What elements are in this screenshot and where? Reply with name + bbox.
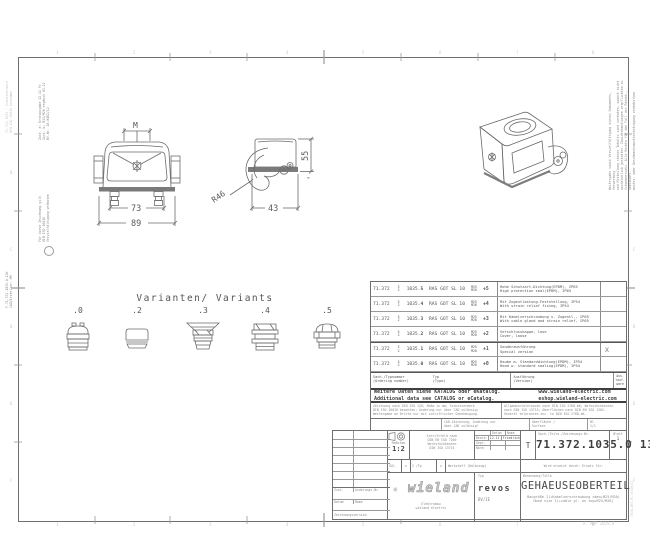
projection-cell: Maßstab 1:2: [388, 431, 410, 459]
margin-left-bottom-note: F-71.372.1035.0-13KCAD/Ersteller: MM: [5, 246, 13, 308]
variant-suffix: +3: [483, 317, 497, 322]
margin-circle-mark: [44, 246, 54, 256]
variant-group-3: .3: [185, 306, 221, 359]
variants-table: 71.372521035.5 RAS GOT SL 10M25M20 +5 Ho…: [370, 281, 627, 433]
type-code: RAS GOT SL 10M25M20: [429, 301, 483, 308]
grid-col-label: 2: [133, 50, 135, 55]
part-number-label: Sach-/Teile-/Zeichnungs-Nr.: [536, 431, 609, 436]
type-code: RAS GOT SL 10M25M20: [429, 331, 483, 338]
header-type: Typ(Type): [427, 373, 511, 388]
variant-suffix: +1: [483, 347, 497, 352]
validity-x1: x: [402, 460, 411, 472]
table-header-row: Sach-/Typnummer(Ordering number) Typ(Typ…: [371, 372, 626, 388]
table-row: 71.372521035.5 RAS GOT SL 10M25M20 +5 Ho…: [371, 282, 626, 297]
side-view-drawing: R46 43 55 ≈: [212, 95, 327, 235]
grid-col-label: 5: [362, 522, 364, 527]
title-block: Zust. Änderungs-Nr. Datum Name Zeichnung…: [332, 430, 627, 520]
dim-label-m: M: [133, 121, 138, 130]
phase-out-flag: [600, 357, 613, 371]
variant-glyph-5: [309, 315, 345, 359]
revision-bottom-label: Zeichnungsversion: [334, 513, 389, 517]
variant-suffix: +0: [483, 362, 497, 367]
dim-label-73: 73: [131, 204, 141, 214]
variant-suffix: +2: [483, 332, 497, 337]
type-code: RAS GOT SL 10M25M20: [429, 286, 483, 293]
part-number-value: 71.372.1035.0 13K: [536, 438, 609, 451]
phase-out-flag: X: [600, 343, 613, 356]
dim-approx-mark: ≈: [307, 176, 310, 181]
type-code: RAS GOT SL 10M25M20: [429, 316, 483, 323]
grid-col-label: 7: [516, 50, 518, 55]
grid-row-label: A: [633, 93, 635, 98]
part-number: 71.372521035.2: [371, 331, 429, 338]
description: Mit Kabelverschraubung u. Zugentl., IP65…: [497, 312, 600, 326]
revision-header-2: Datum Name: [333, 500, 390, 504]
grid-row-label: B: [10, 170, 12, 175]
margin-right-doc-code: 7034-ART-PL-0349/17: [630, 429, 634, 517]
notes-right: Allgemeintoleranzen nach DIN ISO 2768-mK…: [501, 403, 626, 418]
front-view-drawing: M 73 89: [88, 95, 203, 235]
wieland-logo-text: wieland: [408, 481, 470, 496]
grid-col-label: 1: [56, 50, 58, 55]
projection-symbol-icon: [388, 432, 406, 441]
iso-view-drawing: [428, 103, 573, 218]
approval-table: Datum Name Bearb. 12.11 Friedrich Gepr.: [475, 431, 521, 459]
series-name: revos: [478, 484, 520, 494]
variant-glyph-2: [119, 315, 155, 359]
grid-col-label: 5: [362, 50, 364, 55]
variant-group-4: .4: [247, 306, 283, 359]
catalog-note-text: Weitere Daten siehe KATALOG oder eKatalo…: [371, 389, 538, 401]
variant-suffix: +4: [483, 302, 497, 307]
grid-row-label: D: [633, 324, 635, 329]
table-row: 71.372521035.1 RAS GOT SL 10M25M20 +1 So…: [371, 342, 626, 357]
part-number: 71.372521035.0: [371, 361, 429, 368]
variant-glyph-0: [60, 315, 96, 359]
variant-label: .4: [247, 306, 283, 315]
revision-strip: Zust. Änderungs-Nr. Datum Name Zeichnung…: [333, 431, 388, 519]
variant-group-0: .0: [60, 306, 96, 359]
dim-label-r46: R46: [210, 189, 227, 205]
description: Hohe Schutzart-Dichtung(EPDM), IP65High …: [497, 282, 600, 296]
part-number: 71.372521035.3: [371, 316, 429, 323]
drawing-subtitle-en: Hood size 1(+cable gl. on top+M25/M20): [521, 499, 626, 503]
variants-title: Varianten/ Variants: [120, 293, 290, 304]
type-code: RAS GOT SL 10M25M20: [429, 361, 483, 368]
t-marker: T: [521, 431, 536, 459]
variant-label: .2: [119, 306, 155, 315]
grid-col-label: 1: [56, 522, 58, 527]
header-phase-out: Aus-lauf-ware: [613, 373, 626, 388]
table-row: 71.372521035.3 RAS GOT SL 10M25M20 +3 Mi…: [371, 312, 626, 327]
part-number: 71.372521035.5: [371, 286, 429, 293]
revision-header-1: Zust. Änderungs-Nr.: [333, 488, 390, 492]
type-code: RAS GOT SL 10M25M20: [429, 346, 483, 353]
grid-col-label: 8: [592, 522, 594, 527]
dim-label-55: 55: [301, 151, 311, 161]
header-ordering-number: Sach-/Typnummer(Ordering number): [371, 373, 427, 388]
variant-group-2: .2: [119, 306, 155, 359]
footer-format-note: A. MKP 2019.8: [583, 521, 614, 526]
notes-band: Zeichnung nach DIN ISO 128; Maße in mm; …: [371, 403, 626, 419]
brand-cell: ✳ wieland Elektrobau wieland electric: [388, 473, 475, 522]
grid-col-label: 3: [209, 522, 211, 527]
grid-row-label: B: [633, 170, 635, 175]
grid-row-label: C: [10, 247, 12, 252]
grid-col-label: 4: [286, 50, 288, 55]
table-row: 71.372521035.4 RAS GOT SL 10M25M20 +4 Mi…: [371, 297, 626, 312]
title-label: Benennung/Title: [521, 474, 626, 478]
margin-left-outer-note: 71.372.1035 · SchutzvermerkDIN ISO 16016…: [5, 63, 13, 133]
phase-out-flag: [600, 327, 613, 341]
catalog-note-band: Weitere Daten siehe KATALOG oder eKatalo…: [371, 388, 626, 403]
margin-left-revision-note: Zust. a: Erstausgabe 12.11 FrZust. b: M2…: [38, 78, 50, 140]
phase-out-flag: [600, 282, 613, 296]
grid-row-label: E: [633, 401, 635, 406]
grid-col-label: 4: [286, 522, 288, 527]
variant-glyph-3: [185, 315, 221, 359]
drawing-title: GEHAEUSEOBERTEIL: [521, 480, 626, 492]
notes-left: Zeichnung nach DIN ISO 128; Maße in mm; …: [371, 403, 501, 418]
material-label: Werkstoff (Halbzeug): [446, 460, 521, 472]
series-label: Typ: [478, 474, 520, 478]
drawing-sheet: M 73 89 R46 43 55 ≈: [0, 0, 650, 560]
variant-glyph-4: [247, 315, 283, 359]
grid-row-label: D: [10, 324, 12, 329]
variant-label: .5: [309, 306, 345, 315]
grid-row-label: F: [10, 478, 12, 483]
dim-label-89: 89: [131, 219, 141, 229]
brand-sub2: wieland electric: [388, 506, 474, 510]
grid-row-label: E: [10, 401, 12, 406]
variant-suffix: +5: [483, 287, 497, 292]
description: Mit Zugentlastung-Feststellung, IP54With…: [497, 297, 600, 311]
replaced-by-line: Wird ersetzt durch: Ersatz für:: [521, 464, 626, 468]
variant-group-5: .5: [309, 306, 345, 359]
grid-col-label: 2: [133, 522, 135, 527]
table-row: 71.372521035.0 RAS GOT SL 10M25M20 +0 Ha…: [371, 357, 626, 372]
margin-left-protection-note: Für diese Zeichnung giltDIN ISO 16016Ver…: [38, 186, 50, 242]
grid-col-label: 3: [209, 50, 211, 55]
validity-x2: x: [437, 460, 446, 472]
description: SonderausführungSpecial version: [497, 343, 600, 356]
grid-row-label: C: [633, 247, 635, 252]
standards-cell: Schriftfeld nachDIN EN ISO 7200 Werkstüc…: [410, 431, 475, 459]
variant-label: .0: [60, 306, 96, 315]
phase-out-flag: [600, 312, 613, 326]
phase-out-flag: [600, 297, 613, 311]
variant-label: .3: [185, 306, 221, 315]
header-version: Ausführung(Version): [510, 373, 613, 388]
wieland-flower-icon: ✳: [393, 485, 398, 495]
grid-col-label: 6: [439, 522, 441, 527]
table-row: 71.372521035.2 RAS GOT SL 10M25M20 +2 Ve…: [371, 327, 626, 342]
grid-row-label: F: [633, 478, 635, 483]
validity-period: 2 /Tg: [411, 460, 437, 472]
series-cell: Typ revos BV/IE: [475, 473, 521, 522]
part-number: 71.372521035.1: [371, 346, 429, 353]
description: Haube m. Standarddichtung(EPDM), IP54Hoo…: [497, 357, 600, 371]
grid-col-label: 8: [592, 50, 594, 55]
scale-value: 1:2: [388, 445, 409, 453]
description: Verschlusskappe, loseCover, loose: [497, 327, 600, 341]
dim-label-43: 43: [268, 204, 278, 214]
series-sub: BV/IE: [478, 497, 520, 502]
catalog-urls: www.wieland-electric.comeshop.wieland-el…: [538, 389, 626, 401]
grid-row-label: A: [10, 93, 12, 98]
grid-col-label: 6: [439, 50, 441, 55]
margin-right-copyright-note: Weitergabe sowie Vervielfältigung dieses…: [608, 72, 636, 190]
part-number: 71.372521035.4: [371, 301, 429, 308]
grid-col-label: 7: [516, 522, 518, 527]
validity-label: Gül.: [388, 460, 402, 472]
